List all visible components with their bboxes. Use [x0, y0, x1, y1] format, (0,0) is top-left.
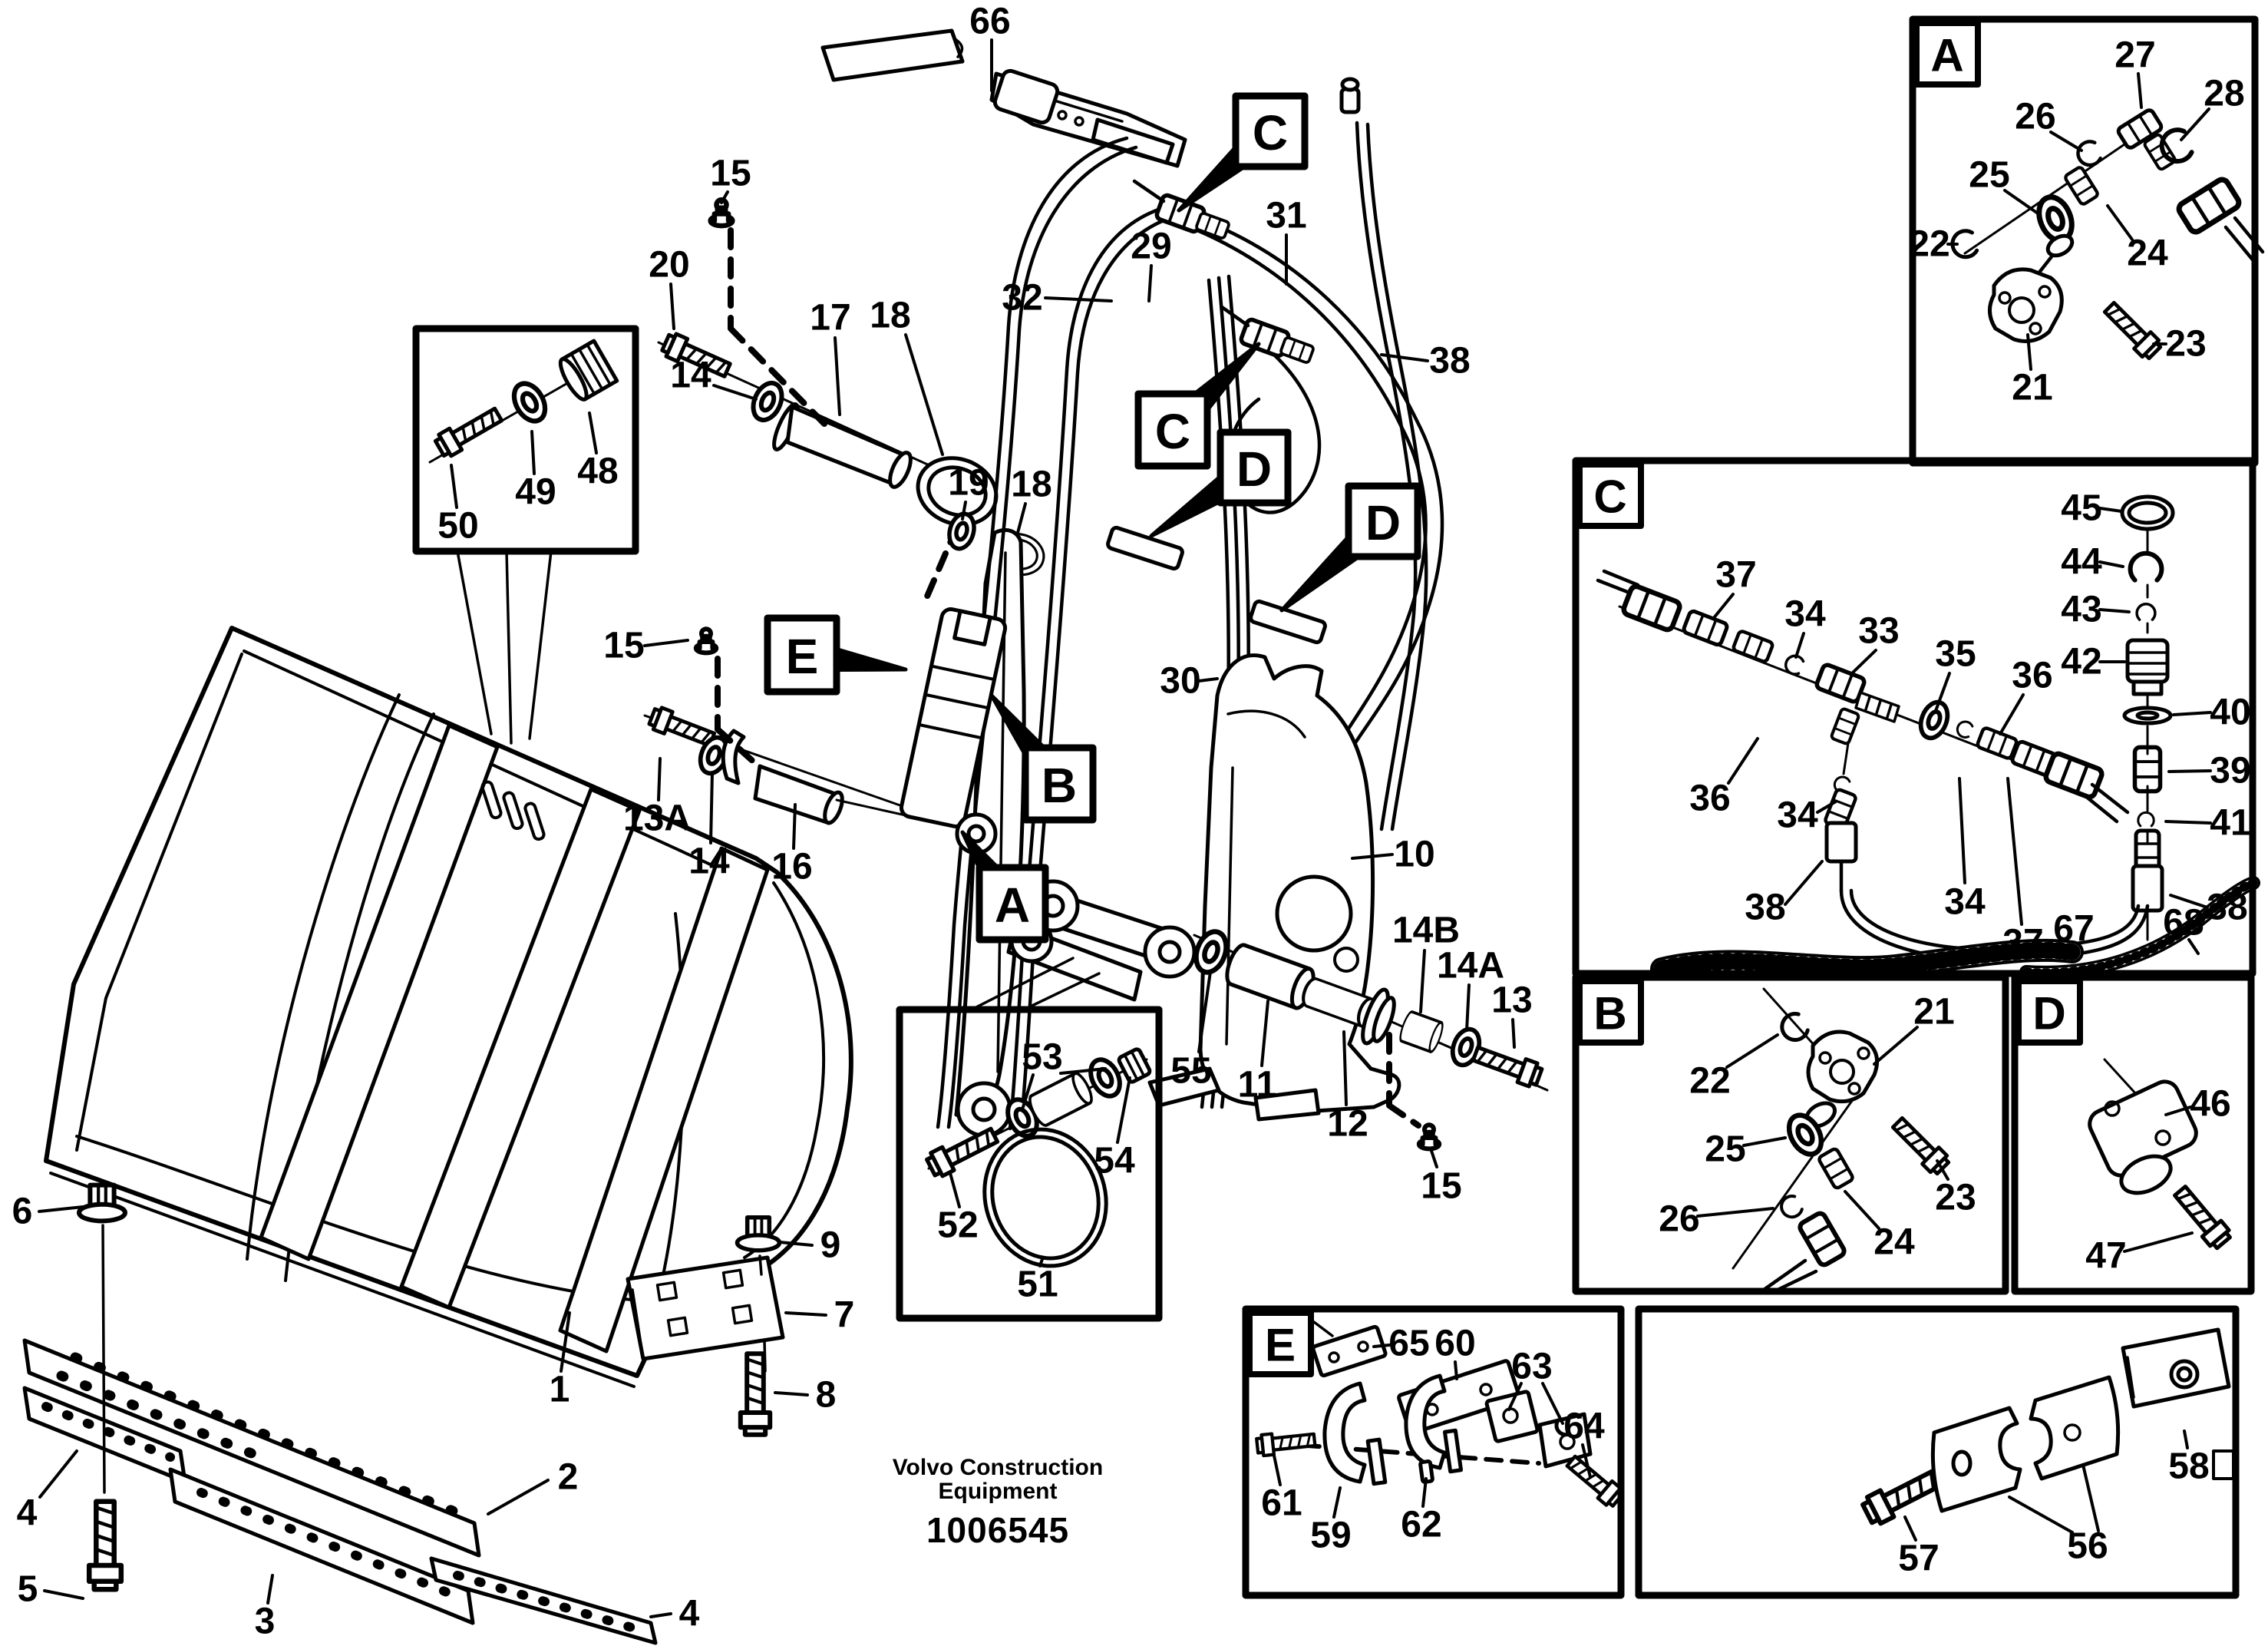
part-label: 23 [1935, 1178, 1976, 1218]
missing-glyph-box [2214, 1451, 2233, 1479]
part-label: 58 [2168, 1446, 2209, 1487]
part-label: 10 [1394, 835, 1434, 875]
leader-line [2008, 778, 2022, 924]
part-label: 4 [679, 1594, 700, 1634]
part-label: 36 [1689, 778, 1730, 819]
inset-letter: D [2032, 988, 2065, 1039]
part-label: 64 [1563, 1406, 1605, 1447]
leader-line [1513, 1020, 1514, 1047]
part-label: 36 [2012, 656, 2052, 696]
brand-line-1: Volvo Construction [867, 1456, 1128, 1479]
part-label: 30 [1160, 661, 1200, 702]
leader-line [2083, 1465, 2098, 1531]
leader-line [1421, 950, 1425, 1012]
part-label: 38 [1429, 341, 1470, 382]
leader-line [1874, 1027, 1917, 1064]
leader-line [1467, 985, 1469, 1030]
part-label: 26 [2015, 97, 2055, 137]
parts-diagram-page: ACBDECCDDEBA66152017181419181513A1416322… [0, 0, 2268, 1646]
part-label: 66 [969, 2, 1010, 42]
leader-line [488, 1480, 548, 1514]
leader-line [2124, 1233, 2192, 1251]
leader-line [1149, 266, 1151, 301]
leader-line [2005, 190, 2040, 215]
part-label: 13 [1491, 980, 1532, 1021]
part-label: 31 [1266, 196, 1306, 236]
leader-line [2169, 771, 2210, 772]
part-label: 17 [810, 298, 850, 339]
part-label: 15 [710, 154, 751, 194]
part-label: 15 [603, 626, 644, 666]
leader-line [1785, 861, 1822, 904]
leader-line [794, 805, 795, 848]
part-label: 7 [834, 1295, 855, 1336]
leader-line [1431, 1149, 1437, 1167]
part-label: 43 [2061, 590, 2101, 630]
part-label: 34 [1777, 795, 1818, 836]
part-label: 33 [1858, 611, 1899, 652]
part-label: 53 [1022, 1037, 1062, 1078]
part-label: 65 [1388, 1324, 1429, 1364]
leader-line [1698, 1208, 1773, 1216]
part-label: 42 [2061, 642, 2101, 683]
part-label: 48 [577, 451, 618, 492]
document-number: 1006545 [867, 1509, 1128, 1551]
leader-line [1374, 1345, 1389, 1347]
leader-line [786, 1313, 826, 1315]
leader-line [532, 431, 534, 474]
leader-line [45, 1591, 83, 1598]
part-label: 52 [937, 1205, 978, 1246]
part-label: 19 [948, 463, 989, 504]
leader-line [1274, 1456, 1280, 1485]
part-label: 8 [816, 1375, 837, 1416]
part-label: 18 [870, 296, 910, 336]
leader-line [714, 385, 756, 399]
leader-line [1959, 778, 1965, 883]
part-label: 34 [1784, 594, 1826, 635]
part-label: 38 [1745, 887, 1785, 928]
leader-line [2174, 712, 2210, 715]
leader-line [1796, 633, 1804, 657]
part-label: 23 [2165, 324, 2206, 365]
strap-66 [823, 31, 1185, 166]
leader-line [1905, 1517, 1916, 1540]
callout-letter: B [1042, 758, 1077, 813]
leader-line [1199, 679, 1217, 681]
leader-line [651, 1614, 671, 1617]
leader-line [1018, 504, 1025, 533]
part-label: 3 [255, 1601, 276, 1642]
leader-line [2000, 695, 2023, 734]
part-label: 61 [1261, 1483, 1302, 1524]
part-label: 45 [2061, 488, 2101, 529]
leader-line [835, 338, 840, 415]
part-label: 46 [2190, 1084, 2230, 1125]
inset-letter: B [1593, 988, 1626, 1039]
inset-C-art [1598, 497, 2253, 973]
leader-line [1727, 1035, 1778, 1067]
part-label: 27 [2114, 35, 2155, 76]
part-label: 29 [1131, 226, 1171, 267]
part-label: 20 [649, 245, 689, 286]
inset-A-art [1949, 109, 2263, 362]
part-label: 68 [2163, 903, 2204, 944]
leader-line [711, 772, 712, 843]
leader-line [906, 335, 943, 454]
leader-line [1728, 739, 1758, 783]
diagram-line-art: ACBDECCDDEBA66152017181419181513A1416322… [0, 0, 2268, 1646]
part-label: 18 [1011, 464, 1051, 505]
part-label: 2 [558, 1457, 579, 1498]
part-label: 60 [1434, 1324, 1475, 1364]
leader-line [2138, 74, 2141, 107]
part-label: 40 [2210, 692, 2250, 733]
part-label: 25 [1969, 155, 2009, 196]
part-label: 14 [670, 355, 711, 396]
part-label: 62 [1401, 1505, 1441, 1545]
document-footer: Volvo Construction Equipment 1006545 [867, 1456, 1128, 1551]
callout-letter: A [995, 878, 1030, 933]
leader-line [1744, 1138, 1785, 1145]
leader-line [2100, 508, 2121, 511]
part-label: 13A [623, 798, 691, 839]
part-label: 51 [1017, 1264, 1058, 1305]
brand-line-2: Equipment [867, 1479, 1128, 1503]
part-label: 55 [1170, 1051, 1211, 1092]
leader-line [1713, 594, 1733, 619]
part-label: 26 [1659, 1199, 1699, 1240]
callout-letter: D [1236, 441, 1272, 497]
leader-line [451, 465, 457, 507]
part-label: 24 [2127, 233, 2168, 274]
leader-line [1455, 1362, 1457, 1379]
part-label: 15 [1421, 1166, 1461, 1207]
part-label: 56 [2067, 1526, 2108, 1567]
part-label: 59 [1310, 1515, 1351, 1556]
leader-line [39, 1207, 83, 1211]
part-label: 28 [2204, 74, 2244, 114]
leader-line [671, 284, 674, 329]
part-label: 11 [1238, 1065, 1277, 1106]
part-label: 63 [1511, 1347, 1552, 1387]
part-label: 4 [17, 1493, 38, 1534]
part-label: 38 [2207, 887, 2247, 928]
part-label: 22 [1689, 1061, 1730, 1102]
callout-letter: D [1365, 495, 1401, 550]
leader-line [268, 1575, 272, 1603]
part-label: 35 [1935, 634, 1976, 675]
leader-line [645, 640, 688, 646]
part-label: 37 [1715, 555, 1756, 596]
leader-line [775, 1393, 807, 1395]
part-label: 22 [1909, 224, 1949, 265]
part-label: 32 [1002, 278, 1042, 319]
part-label: 16 [771, 847, 812, 887]
leader-line [2100, 610, 2129, 612]
part-label: 47 [2085, 1236, 2126, 1277]
part-label: 21 [2012, 368, 2052, 408]
leader-line [2100, 562, 2123, 567]
inset-letter: A [1930, 30, 1963, 81]
leader-line [1045, 298, 1111, 301]
part-label: 39 [2210, 751, 2250, 792]
leader-line [2009, 1497, 2072, 1532]
part-label: 37 [2002, 923, 2043, 963]
callout-letter: C [1253, 105, 1288, 160]
callout-letter: E [786, 629, 819, 684]
leader-line [2166, 821, 2210, 823]
leader-line [1851, 650, 1876, 674]
part-label: 67 [2053, 909, 2094, 950]
part-label: 57 [1898, 1539, 1939, 1579]
part-label: 49 [515, 472, 556, 513]
part-label: 24 [1873, 1222, 1915, 1263]
part-label: 12 [1327, 1104, 1368, 1145]
part-label: 54 [1094, 1141, 1135, 1182]
leader-line [589, 413, 596, 453]
part-label: 41 [2210, 803, 2250, 844]
leader-line [1543, 1383, 1563, 1423]
leader-line [1334, 1488, 1340, 1517]
leader-line [659, 759, 660, 800]
part-label: 6 [12, 1192, 33, 1232]
leader-line [950, 1173, 959, 1207]
callout-letter: C [1155, 404, 1190, 459]
part-label: 25 [1705, 1129, 1745, 1170]
leader-line [40, 1451, 77, 1497]
part-label: 14 [688, 841, 730, 882]
part-label: 34 [1944, 882, 1986, 923]
inset-letter: E [1265, 1320, 1296, 1371]
part-label: 44 [2061, 542, 2102, 583]
inset-56-58-art [1860, 1330, 2229, 1527]
inset-letter: C [1593, 471, 1626, 523]
part-label: 5 [18, 1569, 38, 1610]
part-label: 21 [1913, 992, 1954, 1033]
part-label: 9 [820, 1225, 841, 1266]
part-label: 50 [437, 506, 478, 547]
part-label: 1 [550, 1370, 570, 1410]
